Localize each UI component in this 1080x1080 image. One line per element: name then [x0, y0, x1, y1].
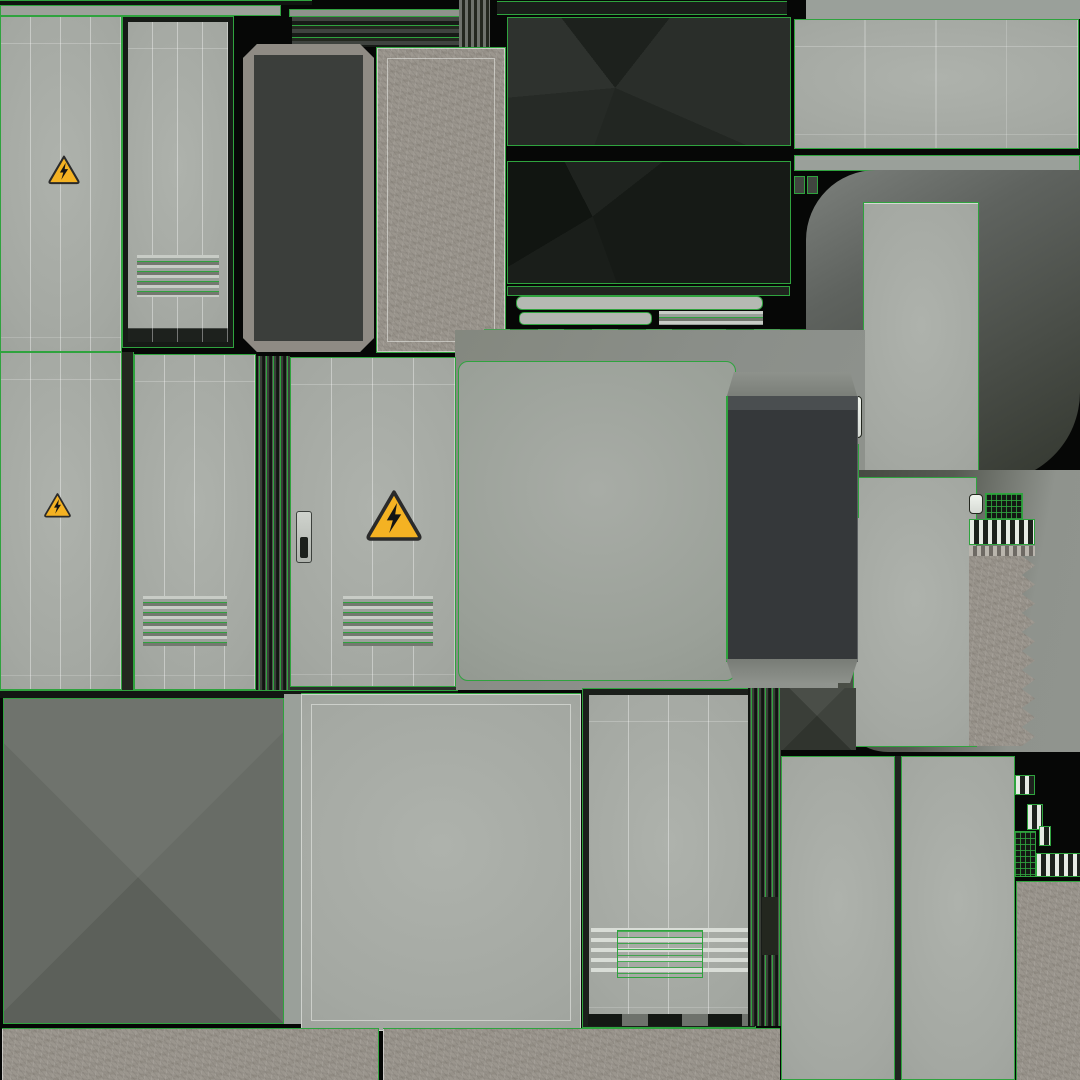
hinge-block-1: [794, 176, 805, 194]
door-handle-slot: [300, 537, 308, 558]
clip-slat-white: [969, 494, 983, 514]
door-handle: [296, 511, 312, 563]
field-top-right: [806, 0, 1080, 19]
hinge-block-2: [807, 176, 818, 194]
roof-black-lower: [507, 161, 791, 284]
vent-top-horizontal: [292, 17, 464, 47]
door-edge-strips: [256, 356, 290, 690]
vent-vertical-right: [969, 519, 1035, 545]
edge-dark-mark: [762, 897, 778, 955]
trim-vent-small: [659, 311, 763, 325]
big-gray-panel: [458, 361, 736, 681]
vent-door-b: [137, 255, 219, 297]
door-q-sill: [588, 1014, 750, 1026]
rail-top-left: [0, 5, 281, 16]
connector-slat-1: [1015, 775, 1035, 795]
dark-door-framed: [243, 44, 374, 352]
concrete-column: [1016, 881, 1080, 1080]
door-edge-strips-q: [748, 688, 781, 1026]
tall-panel-s: [901, 756, 1015, 1080]
connector-slat-3: [1039, 826, 1051, 846]
cabinet-door-b: [123, 17, 233, 347]
panel-top-right: [794, 19, 1079, 149]
tall-panel-r: [781, 756, 895, 1080]
connector-grid: [1014, 831, 1036, 877]
connector-slat-4: [1036, 853, 1080, 877]
vent-q-green: [617, 930, 703, 978]
roof-black-upper: [507, 17, 791, 146]
cabinet-door-j: [0, 352, 122, 690]
high-voltage-warning-icon: [47, 153, 81, 186]
vent-top-vertical: [459, 0, 490, 48]
side-panel-upper: [863, 202, 979, 476]
concrete-slab: [376, 47, 506, 353]
gap-strip-jk: [122, 352, 134, 690]
trim-bar-dark: [507, 286, 790, 296]
rail-top-dark: [497, 1, 787, 15]
charcoal-side-panel: [726, 396, 858, 662]
rail-top-right: [794, 155, 1080, 171]
high-voltage-warning-icon: [43, 491, 72, 519]
concrete-base-strip-2: [383, 1028, 780, 1080]
charcoal-cap-top: [726, 372, 858, 399]
side-panel-lower: [853, 477, 977, 747]
roof-top-faceted: [3, 698, 284, 1024]
facet-wedge: [778, 688, 856, 750]
vent-door-danger: [143, 596, 227, 646]
strip-between-op: [284, 694, 301, 1024]
vent-door-triangle: [343, 596, 433, 646]
high-voltage-warning-icon: [364, 487, 424, 543]
charcoal-cap-bottom: [726, 659, 858, 683]
concrete-base-strip-1: [2, 1028, 379, 1080]
trim-bar-light-long: [516, 296, 763, 310]
rail-top-mid: [289, 9, 462, 17]
flat-panel-p: [301, 694, 581, 1031]
bellows-cap-stripes: [969, 546, 1035, 556]
texture-atlas: ⚠ DANGER HIGH VOLTAGE: [0, 0, 1080, 1080]
trim-bar-light-short: [519, 312, 652, 325]
